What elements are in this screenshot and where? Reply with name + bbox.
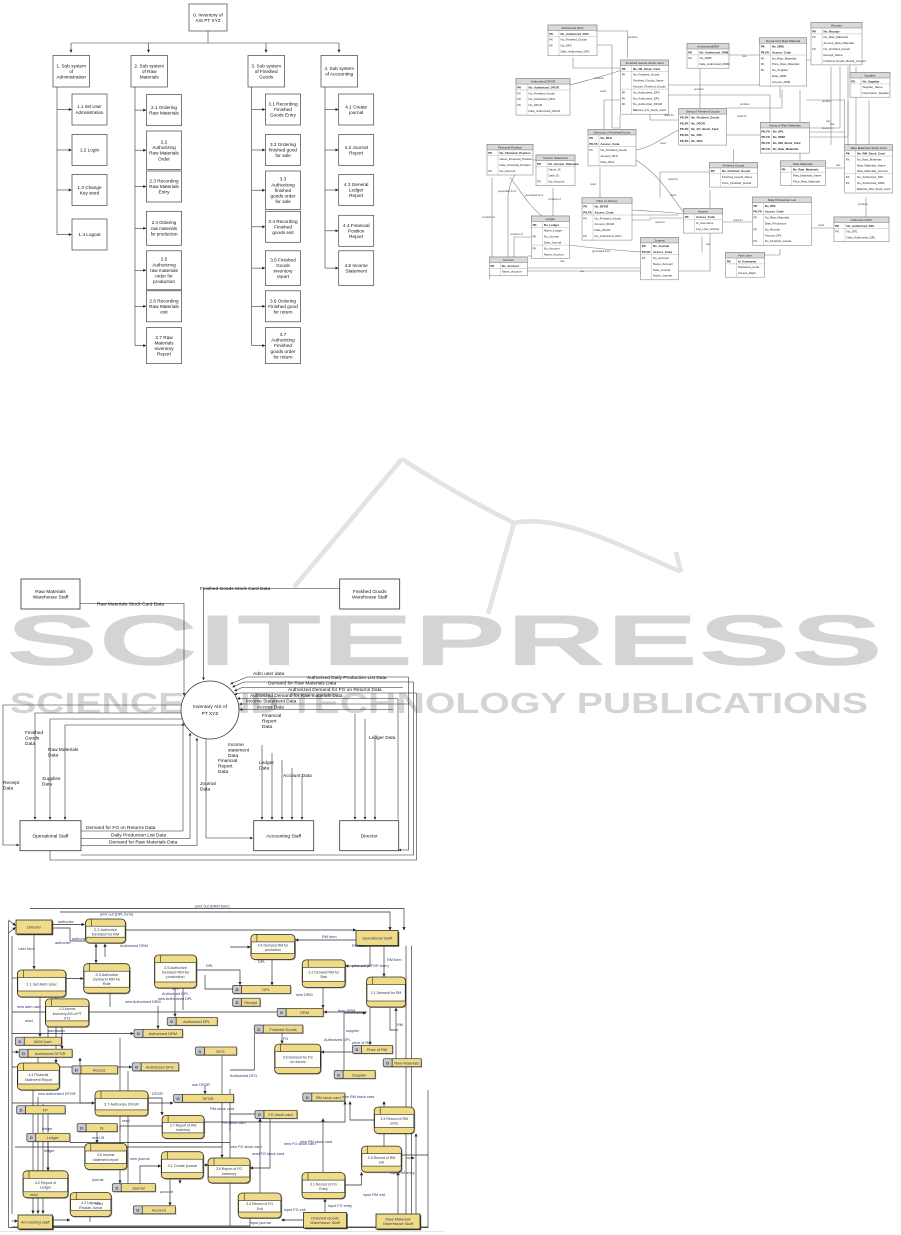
svg-text:Access_Code: Access_Code (601, 142, 620, 146)
svg-text:2.1 Demand for RM: 2.1 Demand for RM (371, 991, 402, 995)
svg-text:Finished_Goods_Name: Finished_Goods_Name (633, 79, 664, 83)
svg-text:Authorized DFG: Authorized DFG (146, 1065, 174, 1070)
svg-text:Journal: Journal (132, 1185, 145, 1190)
svg-text:No_Authorized_DFG: No_Authorized_DFG (529, 97, 557, 101)
svg-text:Raw_Materials_Amount: Raw_Materials_Amount (857, 169, 888, 173)
svg-text:D: D (337, 1072, 340, 1077)
svg-text:Access: Access (698, 210, 708, 214)
svg-text:Authorized DPL: Authorized DPL (162, 992, 189, 996)
svg-text:Raw Materials: Raw Materials (793, 162, 813, 166)
svg-text:Authorized DRM: Authorized DRM (120, 944, 148, 948)
svg-text:No_DFGR: No_DFGR (691, 121, 706, 125)
svg-text:4.5 IncomeStatement: 4.5 IncomeStatement (345, 263, 369, 274)
svg-text:No_Authorized_DPL: No_Authorized_DPL (633, 96, 660, 100)
svg-text:consists of: consists of (510, 232, 523, 236)
svg-text:Using of Finished Goods: Using of Finished Goods (686, 110, 720, 114)
svg-text:3.7 Authorise DFGR: 3.7 Authorise DFGR (104, 1102, 139, 1107)
svg-text:D: D (75, 1068, 78, 1073)
svg-text:Finished Goods Stock Card Data: Finished Goods Stock Card Data (200, 586, 270, 592)
svg-text:PK,FK: PK,FK (762, 135, 772, 139)
svg-text:Amount_DRM: Amount_DRM (772, 80, 791, 84)
svg-text:Raw_Materials_Name: Raw_Materials_Name (857, 163, 886, 167)
svg-text:Date_Production: Date_Production (765, 222, 787, 226)
svg-text:4.1 Create journal: 4.1 Create journal (168, 1164, 197, 1168)
svg-text:Authorized DFG: Authorized DFG (230, 1074, 257, 1078)
svg-text:Date_DFG: Date_DFG (601, 160, 616, 164)
svg-text:new Authorized DRM: new Authorized DRM (125, 1000, 161, 1004)
svg-text:Demand for FG on Returns Data: Demand for FG on Returns Data (86, 825, 156, 831)
svg-text:D: D (177, 1096, 180, 1101)
svg-text:No_Account: No_Account (500, 169, 516, 173)
svg-text:Demand for Raw Materials Data: Demand for Raw Materials Data (268, 681, 337, 687)
svg-text:ReceiptData: ReceiptData (3, 780, 20, 792)
svg-text:ADM User: ADM User (34, 1039, 53, 1044)
svg-text:Authorized Daily Production Li: Authorized Daily Production List Data (307, 675, 387, 681)
svg-text:Balance_RM_Stock_Card: Balance_RM_Stock_Card (857, 187, 891, 191)
svg-text:use: use (560, 260, 565, 263)
svg-text:FK: FK (549, 38, 553, 42)
svg-text:D: D (135, 1065, 138, 1070)
svg-text:DFG on Return: DFG on Return (597, 199, 618, 203)
svg-text:need: need (818, 223, 824, 227)
svg-text:No_Finished_Goods: No_Finished_Goods (722, 169, 750, 173)
svg-text:No_Ledger: No_Ledger (544, 223, 560, 227)
svg-text:read: read (122, 1119, 130, 1123)
svg-text:Account Data: Account Data (283, 773, 312, 779)
svg-text:D: D (257, 1027, 260, 1032)
svg-text:No_DRM: No_DRM (773, 135, 786, 139)
svg-text:need: need (670, 193, 676, 197)
svg-text:Access_Code: Access_Code (696, 215, 715, 219)
svg-text:input journal: input journal (250, 1221, 271, 1225)
svg-text:PK,FK: PK,FK (589, 142, 599, 146)
svg-text:Finished Goods: Finished Goods (269, 1027, 296, 1032)
svg-text:Raw MaterialsWarehouse Staff: Raw MaterialsWarehouse Staff (383, 1217, 414, 1227)
svg-text:Date_DFGR: Date_DFGR (595, 228, 611, 232)
svg-text:PK,FK: PK,FK (680, 127, 690, 131)
svg-text:No_Finished_Goods: No_Finished_Goods (601, 148, 628, 152)
svg-text:admission: admission (48, 1029, 65, 1033)
svg-text:No_Account: No_Account (544, 246, 560, 250)
svg-text:consists of: consists of (482, 215, 495, 219)
svg-text:authorize: authorize (55, 941, 71, 945)
svg-text:FK: FK (754, 227, 758, 231)
svg-text:DPL: DPL (206, 964, 213, 968)
svg-text:Date_Authorized_DFGR: Date_Authorized_DFGR (529, 109, 560, 113)
svg-text:D: D (306, 1095, 309, 1100)
svg-text:1.1 Set Adm User: 1.1 Set Adm User (26, 982, 57, 987)
svg-text:Date_Journal: Date_Journal (544, 241, 562, 245)
svg-text:DFG: DFG (216, 1049, 224, 1054)
svg-text:0. Inventory ofAIS PT XYZ: 0. Inventory ofAIS PT XYZ (193, 12, 223, 23)
svg-text:Price_Finished_Goods: Price_Finished_Goods (722, 181, 752, 185)
svg-text:Access_Code: Access_Code (595, 210, 614, 214)
svg-text:FK: FK (517, 91, 521, 95)
svg-text:Supplier: Supplier (864, 74, 875, 78)
svg-text:No_DPL: No_DPL (773, 129, 784, 133)
svg-text:No_Financial_Position: No_Financial_Position (500, 151, 531, 155)
svg-text:used for: used for (733, 218, 743, 222)
svg-text:No_Authorized_DPL: No_Authorized_DPL (857, 175, 884, 179)
svg-text:print out (DPL form): print out (DPL form) (100, 913, 134, 917)
svg-text:No_FG_Stock_Card: No_FG_Stock_Card (691, 127, 718, 131)
svg-text:DPL: DPL (172, 987, 179, 991)
svg-text:input FG entry: input FG entry (328, 1204, 352, 1208)
svg-text:FK: FK (642, 256, 646, 260)
svg-text:No_DFGR: No_DFGR (529, 103, 543, 107)
svg-text:No_Account: No_Account (549, 180, 565, 184)
svg-text:consists of: consists of (548, 197, 561, 201)
svg-text:2.4 Orderingraw materialsfor p: 2.4 Orderingraw materialsfor production (151, 220, 178, 236)
svg-text:No_DFG: No_DFG (601, 136, 613, 140)
svg-text:SCIENCE AND TECHNOLOGY PUBLICA: SCIENCE AND TECHNOLOGY PUBLICATIONS (10, 688, 868, 720)
svg-text:Amount_DPL: Amount_DPL (765, 233, 783, 237)
svg-text:No_Raw_Materials: No_Raw_Materials (765, 216, 790, 220)
svg-text:FK: FK (517, 103, 521, 107)
svg-text:used for: used for (668, 177, 678, 181)
svg-text:Adm User: Adm User (738, 254, 752, 258)
svg-text:FK: FK (488, 169, 492, 173)
svg-text:Authorized Demand for Raw mate: Authorized Demand for Raw materials Data (250, 693, 343, 699)
svg-text:Operational Staff: Operational Staff (33, 833, 70, 839)
svg-text:No_Authorized_DFG: No_Authorized_DFG (595, 234, 623, 238)
svg-text:No_DPL: No_DPL (847, 230, 858, 234)
svg-text:Name_Account: Name_Account (544, 252, 564, 256)
svg-text:Authorized DFG: Authorized DFG (561, 26, 584, 30)
svg-text:Demand of Raw Material: Demand of Raw Material (766, 39, 800, 43)
svg-text:No_DRB: No_DRB (772, 45, 784, 49)
svg-text:Raw Materials: Raw Materials (394, 1061, 419, 1066)
svg-text:price of RM: price of RM (352, 1041, 371, 1045)
svg-text:Access: Access (93, 1068, 106, 1073)
svg-text:Description_Supplier: Description_Supplier (863, 91, 890, 95)
svg-text:FK: FK (517, 97, 521, 101)
svg-text:Director: Director (361, 833, 378, 839)
svg-text:Daily Production List: Daily Production List (768, 198, 796, 202)
svg-text:No_Authorized_DRM: No_Authorized_DRM (857, 181, 885, 185)
svg-text:FK: FK (761, 68, 765, 72)
svg-text:generated from: generated from (592, 249, 611, 253)
svg-text:Demand of FinishedGoods: Demand of FinishedGoods (594, 131, 631, 135)
svg-text:DRM: DRM (300, 1010, 309, 1015)
svg-text:new journal: new journal (130, 1157, 150, 1161)
svg-text:found on: found on (822, 126, 833, 130)
svg-text:Raw MaterialsWarehouse Staff: Raw MaterialsWarehouse Staff (33, 589, 69, 601)
svg-text:Operational Staff: Operational Staff (362, 935, 393, 940)
svg-text:Amount_Raw_Materials: Amount_Raw_Materials (824, 41, 855, 45)
svg-text:read FG stock card: read FG stock card (252, 1152, 284, 1156)
svg-text:Adm user data: Adm user data (253, 671, 285, 677)
svg-text:new FG stock card: new FG stock card (284, 1142, 316, 1146)
svg-text:Price_Raw_Materials: Price_Raw_Materials (793, 179, 821, 183)
svg-text:No_RM_Stock_Card: No_RM_Stock_Card (857, 152, 885, 156)
svg-text:Finished GoodsWarehouse Staff: Finished GoodsWarehouse Staff (352, 589, 388, 601)
svg-text:FK: FK (622, 102, 626, 106)
svg-text:SuppliesData: SuppliesData (42, 776, 61, 788)
svg-text:input RM exit: input RM exit (363, 1193, 386, 1197)
svg-text:use: use (580, 270, 585, 273)
svg-text:new adm user: new adm user (17, 1005, 42, 1009)
svg-text:FK: FK (761, 56, 765, 60)
svg-text:AuthorizedDRM: AuthorizedDRM (697, 45, 719, 49)
svg-text:Name_Account: Name_Account (653, 262, 673, 266)
svg-text:new FG stock card: new FG stock card (230, 1145, 262, 1149)
svg-text:Access_Right: Access_Right (738, 271, 756, 275)
svg-text:Authorized Demand for FG on Re: Authorized Demand for FG on Returns Data (288, 687, 382, 693)
svg-text:Price of RM: Price of RM (367, 1047, 387, 1052)
svg-text:Raw Materials Stock Card Data: Raw Materials Stock Card Data (97, 602, 164, 608)
svg-text:read: read (30, 1193, 38, 1197)
svg-text:No_Raw_Materials: No_Raw_Materials (773, 147, 799, 151)
svg-text:produce: produce (594, 76, 604, 80)
svg-text:FK: FK (533, 246, 537, 250)
svg-text:No_DFG: No_DFG (691, 139, 703, 143)
svg-text:produce: produce (858, 202, 868, 206)
svg-text:FinancialReportData: FinancialReportData (218, 758, 237, 775)
svg-text:2.2 AuthorizeDemand for RM: 2.2 AuthorizeDemand for RM (92, 927, 119, 937)
svg-text:User form: User form (18, 947, 35, 951)
svg-text:No_Authorized_DRM: No_Authorized_DRM (700, 50, 729, 54)
svg-text:PK,FK: PK,FK (762, 141, 772, 145)
svg-text:No_Account: No_Account (653, 256, 669, 260)
svg-text:No_DFG: No_DFG (561, 44, 573, 48)
svg-text:No_Authorized_DFG: No_Authorized_DFG (633, 90, 661, 94)
svg-text:1.3 ChangeKey word: 1.3 ChangeKey word (77, 185, 102, 196)
svg-text:new RM stock card: new RM stock card (342, 1095, 374, 1099)
svg-text:No_Receipt: No_Receipt (824, 29, 840, 33)
svg-text:FK: FK (533, 235, 537, 239)
svg-text:PK,FK: PK,FK (680, 133, 690, 137)
svg-text:use DFGR: use DFGR (192, 1083, 210, 1087)
svg-text:Raw MaterialsData: Raw MaterialsData (48, 747, 79, 759)
svg-text:Finished GoodsWarehouse Staff: Finished GoodsWarehouse Staff (310, 1215, 341, 1225)
svg-text:Price_Raw_Materials: Price_Raw_Materials (772, 62, 800, 66)
svg-text:Income Statement Data: Income Statement Data (246, 699, 297, 705)
svg-text:Date_Journal: Date_Journal (653, 268, 671, 272)
svg-text:FK: FK (583, 216, 587, 220)
svg-text:Date_Authorized_DFG: Date_Authorized_DFG (561, 50, 591, 54)
svg-text:has: has (830, 122, 835, 126)
svg-text:Id_Username: Id_Username (696, 221, 714, 225)
svg-text:Finished_Goods_Result_Amount: Finished_Goods_Result_Amount (824, 59, 867, 63)
svg-text:Account: Account (152, 1208, 167, 1213)
svg-text:No_Journal: No_Journal (653, 244, 669, 248)
svg-text:No_FB_Stock_Card: No_FB_Stock_Card (633, 67, 660, 71)
svg-text:Authorized DFGR: Authorized DFGR (531, 80, 556, 84)
svg-text:Id_Username: Id_Username (738, 259, 757, 263)
svg-text:generated from: generated from (525, 193, 544, 197)
svg-text:FK: FK (812, 35, 816, 39)
svg-text:D: D (137, 1031, 140, 1036)
svg-text:Name_IS: Name_IS (549, 168, 561, 172)
svg-text:authorize: authorize (58, 920, 74, 924)
svg-text:from DRM: from DRM (338, 1009, 355, 1013)
svg-text:has: has (706, 242, 711, 246)
svg-text:Access_Code: Access_Code (772, 50, 791, 54)
svg-text:No_Authorized_DPL: No_Authorized_DPL (847, 224, 875, 228)
svg-text:RM: RM (397, 1023, 403, 1027)
svg-text:Authorized DFGR: Authorized DFGR (35, 1051, 66, 1056)
svg-text:Finished Goods Stock Card: Finished Goods Stock Card (626, 61, 664, 65)
svg-text:IS: IS (100, 1125, 104, 1130)
svg-text:used for: used for (655, 220, 665, 224)
svg-text:D: D (115, 1185, 118, 1190)
svg-text:FK: FK (846, 175, 850, 179)
svg-text:Date_Financial_Position: Date_Financial_Position (500, 163, 532, 167)
svg-text:input RM entry: input RM entry (390, 1171, 415, 1175)
svg-text:No_Finished_Goods: No_Finished_Goods (691, 115, 719, 119)
svg-text:PK,FK: PK,FK (583, 210, 593, 214)
svg-text:FK: FK (549, 44, 553, 48)
svg-text:No_Authorized_DFGR: No_Authorized_DFGR (529, 85, 560, 89)
svg-text:No_Finished_Goods: No_Finished_Goods (765, 239, 792, 243)
svg-text:IncomestatementData: IncomestatementData (228, 742, 250, 759)
svg-text:journal: journal (91, 1178, 104, 1182)
svg-text:FK: FK (688, 56, 692, 60)
svg-text:Date_IS: Date_IS (549, 174, 560, 178)
svg-text:read: read (95, 1202, 103, 1206)
svg-text:Authorized DPL: Authorized DPL (183, 1019, 211, 1024)
svg-text:FK: FK (622, 73, 626, 77)
svg-text:No_DFGR: No_DFGR (595, 205, 610, 209)
svg-text:D: D (170, 1019, 173, 1024)
svg-text:Password_Code: Password_Code (738, 265, 760, 269)
svg-text:print out (DFGR form): print out (DFGR form) (352, 964, 389, 968)
svg-text:FinishedGoodsData: FinishedGoodsData (25, 730, 43, 747)
svg-text:D: D (258, 1112, 261, 1117)
svg-text:D: D (386, 1061, 389, 1066)
svg-text:FK: FK (537, 180, 541, 184)
svg-text:1.1 Set UserAdministration: 1.1 Set UserAdministration (76, 104, 104, 115)
svg-text:FinancialReportData: FinancialReportData (262, 713, 281, 730)
svg-text:No_Supplier: No_Supplier (772, 68, 788, 72)
svg-text:need: need (600, 89, 606, 93)
svg-text:FK: FK (754, 216, 758, 220)
svg-text:read: read (25, 1019, 33, 1023)
svg-text:use: use (742, 55, 747, 58)
svg-text:PK,FK: PK,FK (754, 210, 764, 214)
svg-text:No_Authorized_DFGR: No_Authorized_DFGR (633, 102, 662, 106)
svg-text:Receipt: Receipt (244, 1000, 258, 1005)
svg-text:Name_Financial_Position: Name_Financial_Position (500, 157, 533, 161)
svg-text:PK,FK: PK,FK (680, 121, 690, 125)
svg-text:Raw_Materials_Name: Raw_Materials_Name (793, 174, 822, 178)
svg-text:FK: FK (622, 90, 626, 94)
svg-text:Ledger Data: Ledger Data (369, 735, 396, 741)
svg-text:D: D (18, 1039, 21, 1044)
svg-text:D: D (356, 1047, 359, 1052)
svg-text:FK: FK (846, 181, 850, 185)
svg-text:D: D (30, 1135, 33, 1140)
svg-text:FG stock card: FG stock card (222, 1121, 246, 1125)
svg-text:PK,FK: PK,FK (762, 147, 772, 151)
svg-text:FK: FK (846, 157, 850, 161)
svg-text:DPL: DPL (262, 987, 270, 992)
svg-text:Journal: Journal (655, 239, 665, 243)
svg-text:DFGR: DFGR (152, 1092, 163, 1096)
svg-text:Finished_Goods_Name: Finished_Goods_Name (722, 175, 753, 179)
svg-text:D: D (20, 1108, 23, 1113)
svg-text:D: D (136, 1208, 139, 1213)
svg-text:FK: FK (754, 239, 758, 243)
svg-text:4.4 FinancialStatement Report: 4.4 FinancialStatement Report (25, 1073, 52, 1082)
svg-text:produce: produce (740, 102, 750, 106)
svg-text:Supplier: Supplier (352, 1072, 367, 1077)
svg-text:DPL: DPL (258, 960, 265, 964)
svg-text:new Authorized DPL: new Authorized DPL (158, 997, 192, 1001)
svg-text:No_Raw_Materials: No_Raw_Materials (793, 168, 819, 172)
svg-text:supplier: supplier (346, 1029, 360, 1033)
svg-text:Authorized DPL: Authorized DPL (324, 1038, 351, 1042)
svg-text:read IS: read IS (92, 1136, 105, 1140)
svg-text:No_Income_Statemen: No_Income_Statemen (549, 162, 579, 166)
svg-text:Date_Authorized_DRM: Date_Authorized_DRM (700, 62, 730, 66)
svg-text:No_Journal: No_Journal (544, 235, 559, 239)
svg-text:Supplier_Name: Supplier_Name (863, 85, 883, 89)
svg-text:4. Sub systemof Accounting: 4. Sub systemof Accounting (324, 66, 354, 77)
svg-text:Director: Director (27, 924, 42, 929)
svg-text:Date_DRM: Date_DRM (772, 74, 787, 78)
svg-text:ledger: ledger (42, 1127, 53, 1131)
svg-text:RM stock card: RM stock card (316, 1095, 341, 1100)
svg-text:FG stock card: FG stock card (268, 1112, 292, 1117)
svg-text:produce: produce (694, 87, 704, 91)
svg-text:No_Finished_Goods: No_Finished_Goods (561, 38, 588, 42)
svg-text:No_DPL: No_DPL (691, 133, 702, 137)
svg-text:D: D (236, 987, 239, 992)
svg-text:FK: FK (622, 96, 626, 100)
svg-text:Amount_DFGR: Amount_DFGR (595, 222, 615, 226)
svg-text:Receipt: Receipt (831, 24, 842, 28)
svg-text:Authorized DPL: Authorized DPL (851, 218, 873, 222)
svg-text:DFGR: DFGR (203, 1096, 214, 1101)
svg-text:Accounting Staff: Accounting Staff (266, 833, 302, 839)
svg-text:Ledger: Ledger (546, 217, 556, 221)
svg-text:Access_Code: Access_Code (765, 210, 784, 214)
svg-text:Account: Account (503, 258, 514, 262)
svg-text:used: used (590, 182, 596, 186)
svg-text:Accounting staff: Accounting staff (20, 1219, 50, 1224)
svg-text:Amount_DFG: Amount_DFG (601, 154, 619, 158)
svg-text:FP: FP (43, 1108, 48, 1113)
svg-text:RM stock card: RM stock card (210, 1107, 234, 1111)
svg-text:No_Raw_Materials: No_Raw_Materials (857, 157, 882, 161)
svg-text:PK,FK: PK,FK (680, 115, 690, 119)
svg-text:RM form: RM form (352, 944, 367, 948)
svg-text:Date_Authorized_DPL: Date_Authorized_DPL (847, 236, 876, 240)
svg-text:produce: produce (628, 35, 638, 39)
svg-text:No_Receipt: No_Receipt (765, 227, 780, 231)
svg-text:Demand for Raw Materials Data: Demand for Raw Materials Data (109, 840, 178, 846)
svg-text:Authorized DRM: Authorized DRM (149, 1031, 178, 1036)
svg-text:No_Finished_Goods: No_Finished_Goods (529, 91, 556, 95)
svg-text:Receipt_Name: Receipt_Name (824, 53, 844, 57)
svg-text:RM form: RM form (387, 958, 402, 962)
svg-text:D: D (199, 1049, 202, 1054)
svg-text:input FG exit: input FG exit (284, 1208, 306, 1212)
svg-text:Finished Goods: Finished Goods (723, 164, 745, 168)
svg-text:2.1 OrderingRaw Materials: 2.1 OrderingRaw Materials (149, 105, 179, 116)
svg-text:Using of Raw Materials: Using of Raw Materials (769, 124, 801, 128)
svg-text:PK,FK: PK,FK (680, 139, 690, 143)
svg-text:FK: FK (589, 148, 593, 152)
svg-text:Balance_FG_Stock_Card: Balance_FG_Stock_Card (633, 108, 666, 112)
svg-text:new DRM: new DRM (296, 993, 313, 997)
svg-text:No_Raw_Materials: No_Raw_Materials (772, 56, 797, 60)
svg-text:RM form: RM form (322, 935, 337, 939)
svg-text:1.2 Login: 1.2 Login (80, 148, 100, 153)
svg-text:D: D (236, 1000, 239, 1005)
